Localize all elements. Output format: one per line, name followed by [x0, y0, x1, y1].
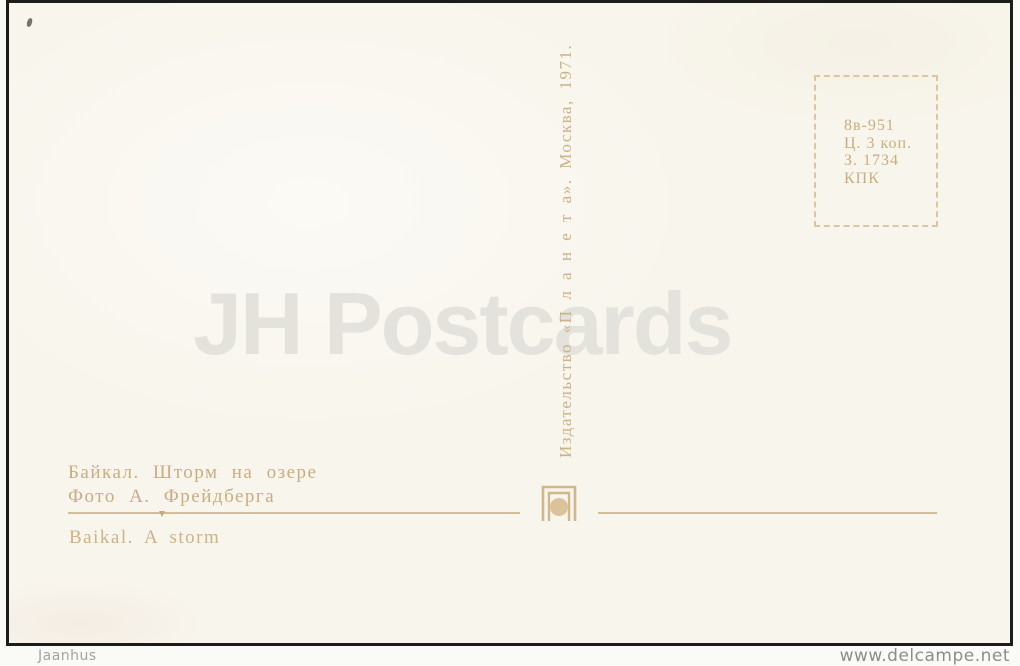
stamp-line-printer: КПК — [844, 170, 912, 188]
stamp-line-code: 8в-951 — [844, 117, 912, 135]
caption-title-ru: Байкал. Шторм на озере — [68, 462, 317, 484]
publisher-imprint: Издательство «П л а н е т а». Москва, 19… — [556, 44, 576, 458]
caption-photo-credit-ru: Фото А. Фрейдберга — [68, 486, 275, 508]
caption-title-en: Baikal. A storm — [69, 527, 220, 549]
watermark-text: JH Postcards — [193, 273, 731, 375]
stamp-price-box: 8в-951 Ц. 3 коп. З. 1734 КПК — [814, 75, 938, 227]
divider-line-right — [598, 512, 937, 514]
seller-name: Jaanhus — [38, 648, 97, 664]
stamp-line-price: Ц. 3 коп. — [844, 135, 912, 153]
divider-line-left — [68, 512, 520, 514]
ink-speck — [26, 18, 33, 28]
planeta-publisher-logo-icon — [539, 483, 579, 521]
stamp-price-lines: 8в-951 Ц. 3 коп. З. 1734 КПК — [844, 117, 912, 187]
stamp-line-order: З. 1734 — [844, 152, 912, 170]
delcampe-site-link[interactable]: www.delcampe.net — [840, 646, 1010, 666]
